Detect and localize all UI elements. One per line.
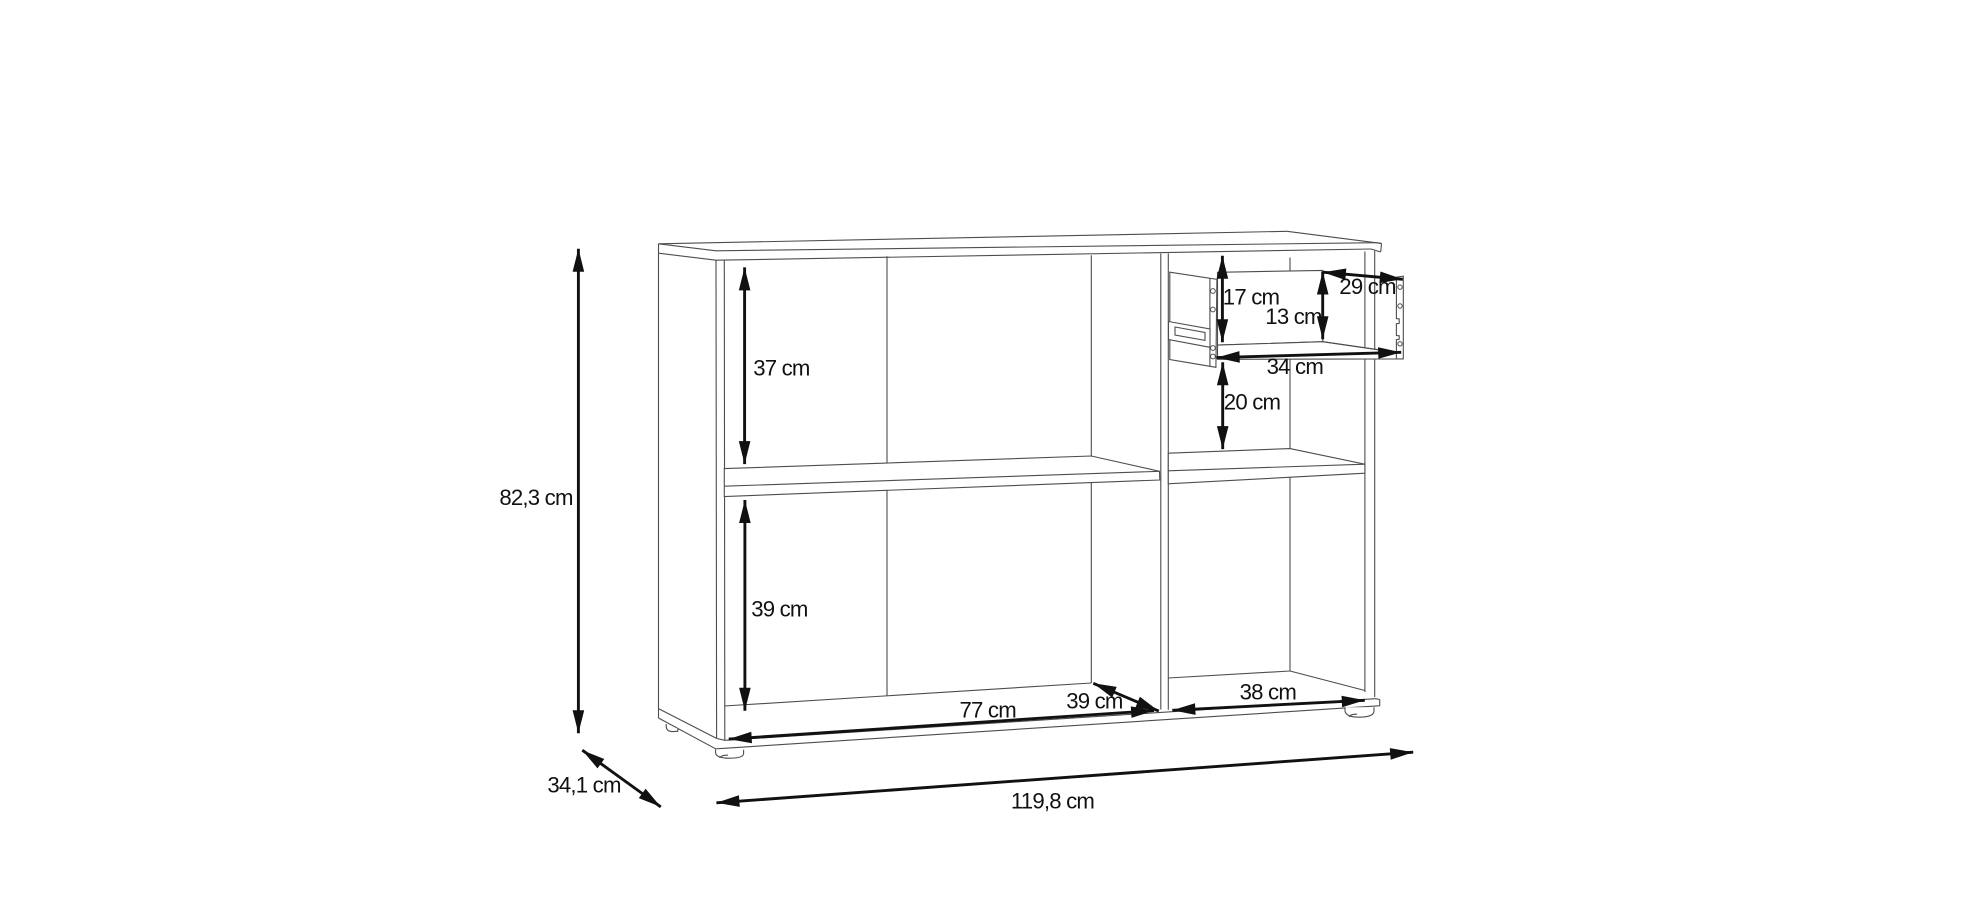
svg-text:37 cm: 37 cm [753,356,810,381]
svg-text:82,3 cm: 82,3 cm [499,485,573,510]
svg-text:38 cm: 38 cm [1240,679,1297,704]
svg-text:29 cm: 29 cm [1339,274,1396,299]
svg-text:34 cm: 34 cm [1267,354,1324,379]
svg-text:20 cm: 20 cm [1224,389,1281,414]
svg-text:13 cm: 13 cm [1265,304,1322,329]
svg-text:77 cm: 77 cm [959,698,1016,723]
svg-text:34,1 cm: 34,1 cm [547,772,621,797]
svg-text:39 cm: 39 cm [751,597,808,622]
svg-text:39 cm: 39 cm [1066,688,1123,713]
svg-text:119,8 cm: 119,8 cm [1011,788,1095,813]
